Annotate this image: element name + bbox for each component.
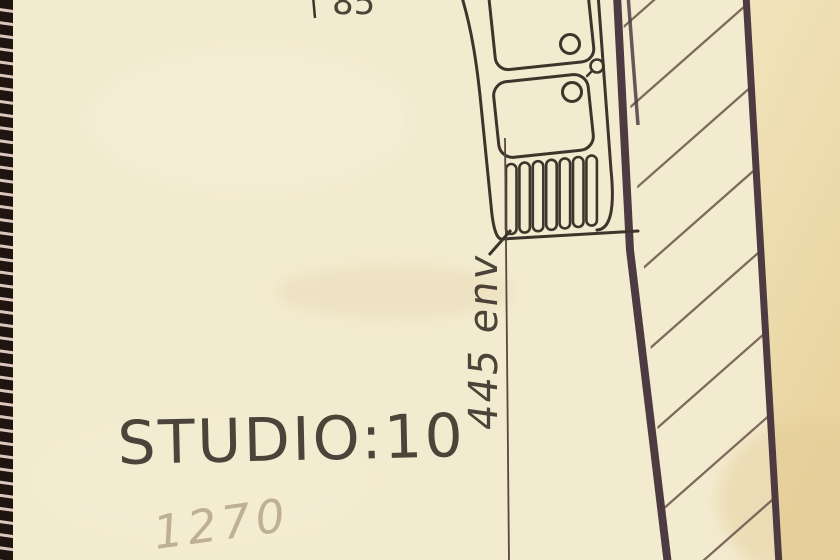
floor-plan-drawing: 85 445 env STUDIO:10 1270 [0,0,840,560]
top-partial-dimension-label: 85 [332,0,375,23]
dimension-label: 445 env [461,250,507,433]
scan-edge-strip [0,0,13,560]
scanned-floor-plan: 85 445 env STUDIO:10 1270 [0,0,840,560]
room-label: STUDIO:10 [117,401,466,479]
